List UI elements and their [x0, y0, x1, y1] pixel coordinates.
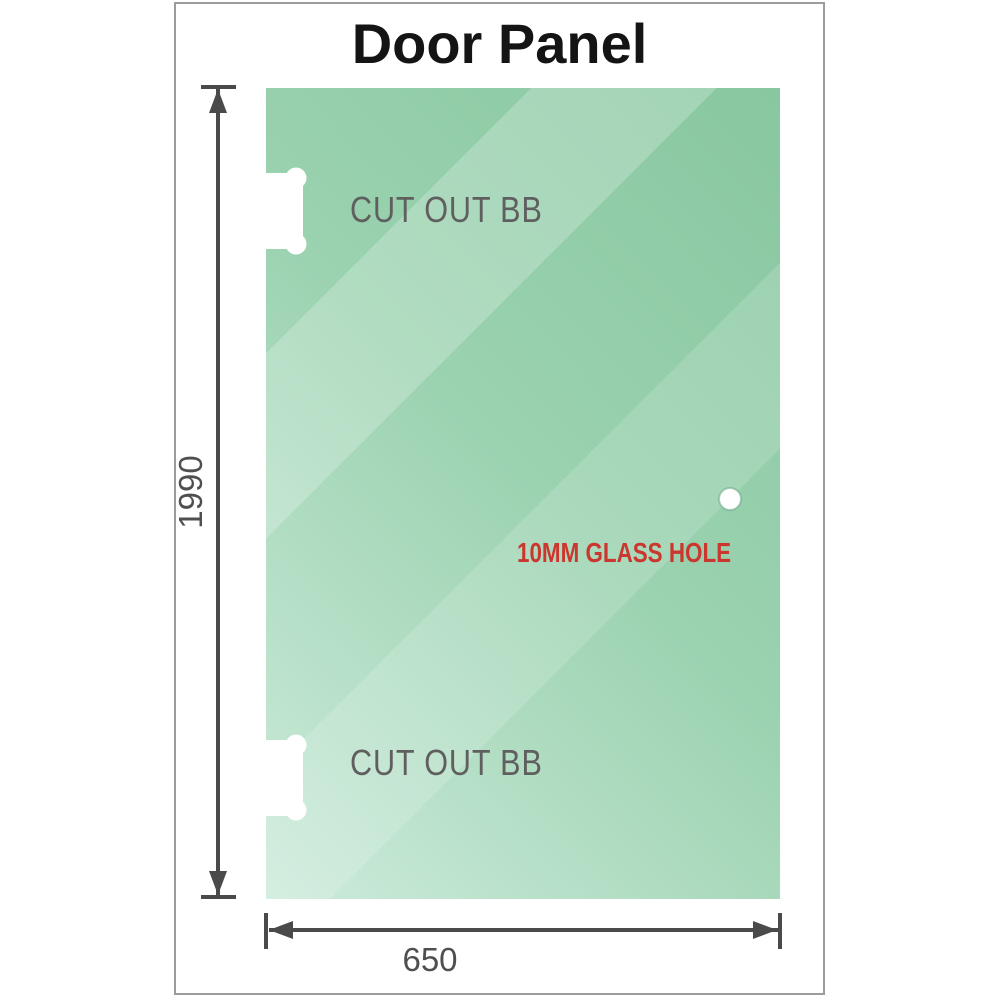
width-dimension-label: 650 [370, 940, 490, 980]
height-dimension-label: 1990 [171, 427, 211, 557]
diagram-page: Door Panel CUT OUT BB CUT OUT BB 10MM GL… [0, 0, 1000, 1000]
width-dimension-arrow-icon [264, 913, 782, 949]
drawing-frame: Door Panel CUT OUT BB CUT OUT BB 10MM GL… [174, 2, 825, 995]
dimension-arrows [176, 4, 827, 997]
